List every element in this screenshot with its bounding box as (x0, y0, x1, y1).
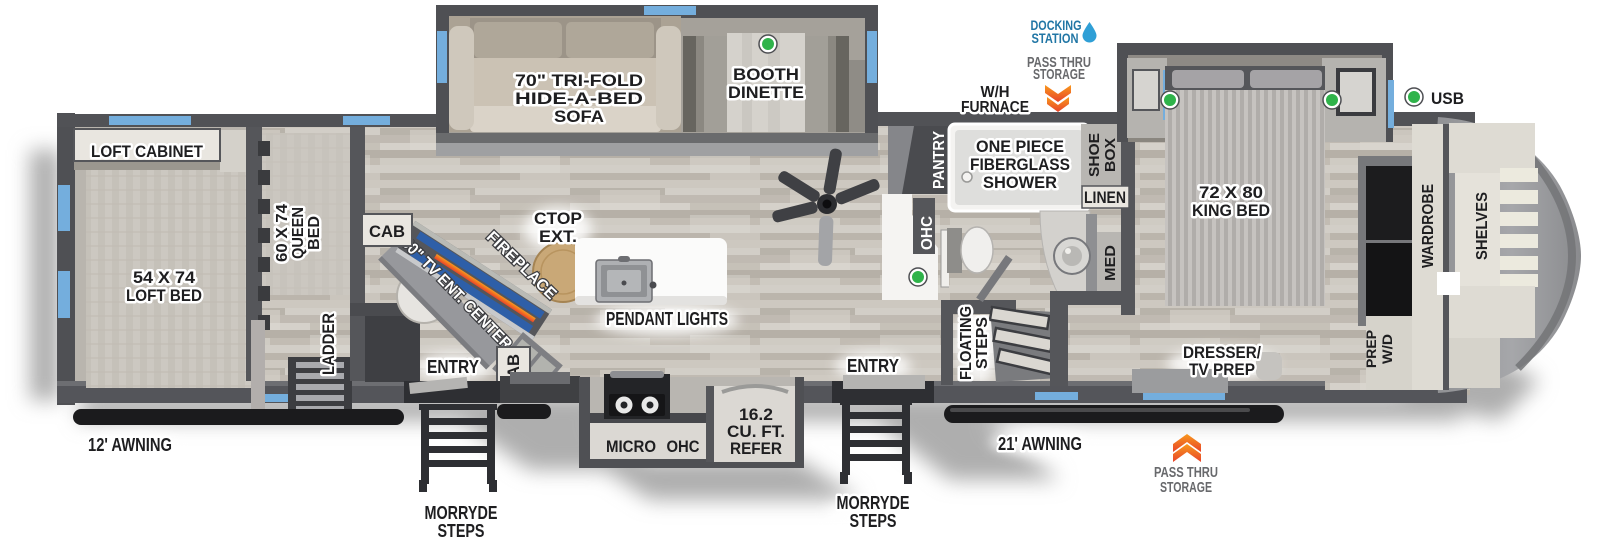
svg-text:USB: USB (1431, 89, 1464, 108)
svg-text:CAB: CAB (369, 222, 405, 241)
svg-text:70" TRI-FOLD: 70" TRI-FOLD (515, 71, 643, 90)
svg-text:TV PREP: TV PREP (1189, 360, 1255, 379)
svg-text:LADDER: LADDER (319, 313, 338, 375)
svg-text:72 X 80: 72 X 80 (1199, 183, 1263, 202)
svg-text:OHC: OHC (667, 437, 700, 456)
svg-text:STORAGE: STORAGE (1033, 66, 1085, 83)
svg-text:SHELVES: SHELVES (1474, 192, 1491, 260)
svg-text:FURNACE: FURNACE (961, 99, 1029, 116)
svg-text:WARDROBE: WARDROBE (1420, 184, 1437, 268)
svg-text:W/D: W/D (1379, 334, 1395, 364)
svg-text:PENDANT LIGHTS: PENDANT LIGHTS (606, 309, 728, 329)
svg-text:ONE PIECE: ONE PIECE (976, 137, 1064, 156)
svg-text:ENTRY: ENTRY (427, 357, 479, 377)
svg-text:21' AWNING: 21' AWNING (998, 434, 1082, 454)
svg-text:REFER: REFER (730, 439, 782, 458)
svg-text:STEPS: STEPS (974, 317, 991, 369)
svg-text:BOX: BOX (1102, 138, 1119, 172)
svg-text:LOFT CABINET: LOFT CABINET (91, 142, 204, 161)
svg-text:STEPS: STEPS (850, 511, 897, 531)
svg-text:ENTRY: ENTRY (847, 356, 899, 376)
svg-text:STORAGE: STORAGE (1160, 479, 1212, 496)
svg-text:12' AWNING: 12' AWNING (88, 435, 172, 455)
svg-text:KING BED: KING BED (1192, 201, 1270, 220)
svg-text:STATION: STATION (1032, 30, 1079, 46)
svg-text:FLOATING: FLOATING (958, 306, 975, 380)
svg-text:MICRO: MICRO (606, 437, 656, 456)
svg-text:QUEEN: QUEEN (290, 207, 307, 259)
svg-text:SHOE: SHOE (1086, 133, 1103, 177)
svg-text:STEPS: STEPS (438, 521, 485, 541)
svg-text:MED: MED (1102, 245, 1119, 281)
svg-text:60 X 74: 60 X 74 (274, 204, 291, 262)
svg-text:OHC: OHC (919, 216, 936, 250)
svg-text:54 X 74: 54 X 74 (133, 268, 196, 287)
svg-text:HIDE-A-BED: HIDE-A-BED (515, 89, 643, 108)
svg-text:CTOP: CTOP (534, 209, 582, 228)
svg-text:MORRYDE: MORRYDE (837, 493, 910, 513)
svg-text:BED: BED (306, 216, 323, 250)
svg-text:LOFT BED: LOFT BED (126, 286, 202, 305)
svg-text:PANTRY: PANTRY (931, 131, 948, 189)
svg-text:EXT.: EXT. (539, 227, 577, 246)
svg-text:MORRYDE: MORRYDE (425, 503, 498, 523)
svg-text:LINEN: LINEN (1084, 188, 1126, 207)
svg-text:SHOWER: SHOWER (983, 173, 1057, 192)
svg-text:DINETTE: DINETTE (728, 83, 804, 102)
svg-text:PREP: PREP (1363, 330, 1379, 368)
svg-text:FIBERGLASS: FIBERGLASS (970, 155, 1070, 174)
svg-text:BOOTH: BOOTH (733, 65, 799, 84)
svg-text:SOFA: SOFA (554, 107, 604, 126)
